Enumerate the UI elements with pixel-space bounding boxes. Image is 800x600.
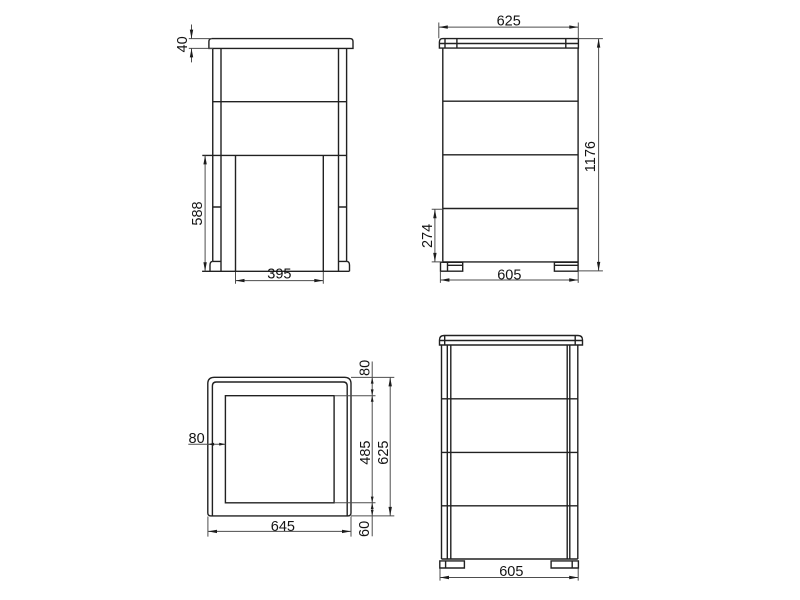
svg-text:605: 605: [497, 267, 521, 283]
svg-text:395: 395: [267, 267, 291, 283]
svg-text:625: 625: [376, 440, 392, 464]
svg-text:40: 40: [175, 36, 191, 52]
svg-text:80: 80: [189, 431, 205, 447]
svg-text:645: 645: [271, 519, 295, 535]
svg-text:485: 485: [358, 440, 374, 464]
svg-text:605: 605: [499, 564, 523, 580]
svg-text:625: 625: [497, 13, 521, 29]
svg-text:80: 80: [358, 360, 374, 376]
svg-text:60: 60: [357, 521, 373, 537]
svg-text:274: 274: [420, 224, 436, 248]
svg-text:1176: 1176: [583, 141, 599, 172]
svg-text:588: 588: [190, 201, 206, 225]
